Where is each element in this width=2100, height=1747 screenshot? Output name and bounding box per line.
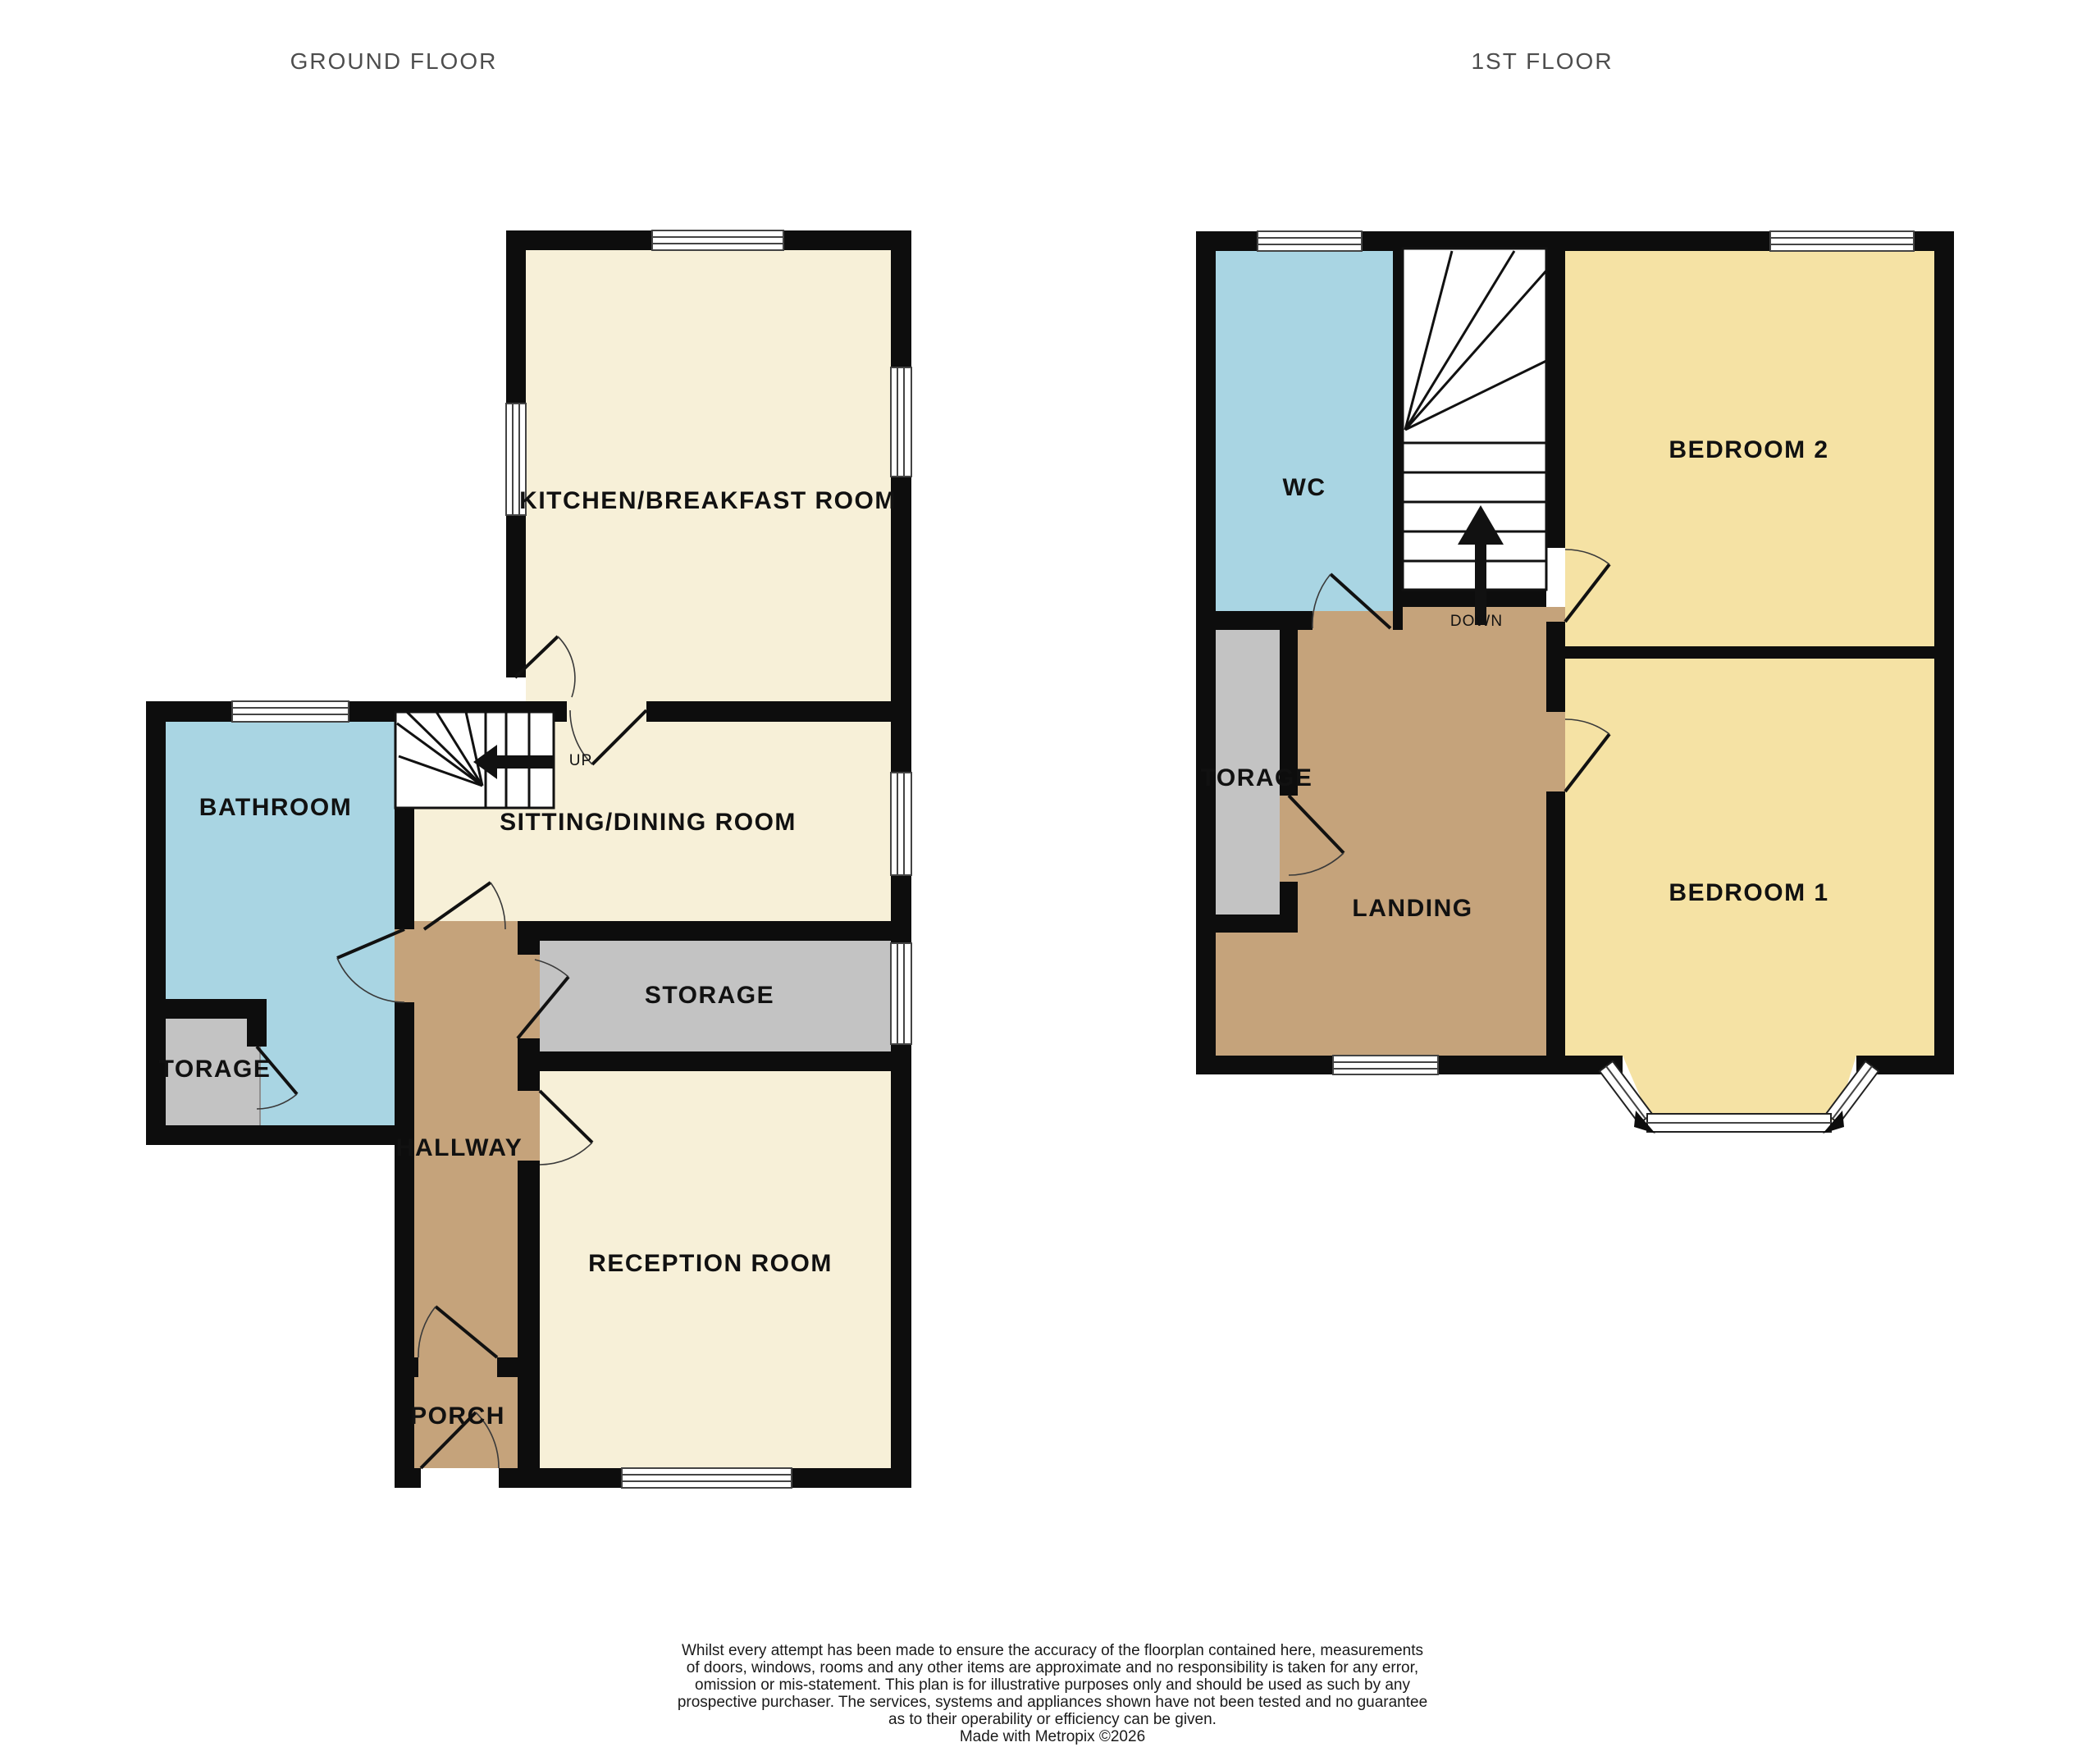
floorplan-page: GROUND FLOOR 1ST FLOOR (0, 0, 2100, 1747)
label-bathroom: BATHROOM (199, 794, 352, 821)
wall (166, 999, 267, 1019)
label-bedroom1: BEDROOM 1 (1669, 879, 1828, 906)
label-storage-ground: STORAGE (645, 982, 774, 1009)
wall (1546, 646, 1934, 659)
ground-floor-plan: KITCHEN/BREAKFAST ROOM SITTING/DINING RO… (146, 230, 911, 1488)
window-bathroom-top (232, 701, 349, 722)
window-pane (891, 943, 911, 1044)
window-wc-top (1258, 231, 1362, 251)
wall (395, 1468, 421, 1488)
label-storage-small-ground: TORAGE (159, 1056, 272, 1083)
window-pane (891, 367, 911, 477)
wall (1546, 791, 1565, 1056)
label-porch: PORCH (410, 1403, 505, 1430)
wall (1546, 659, 1565, 712)
window-pane (652, 230, 783, 250)
window-pane (1333, 1056, 1438, 1074)
room-bedroom1-bay (1623, 1056, 1856, 1120)
window-pane (1258, 231, 1362, 251)
label-landing: LANDING (1352, 895, 1472, 922)
wall (1393, 249, 1403, 630)
disclaimer-line: omission or mis-statement. This plan is … (525, 1676, 1580, 1694)
disclaimer-line: Made with Metropix ©2026 (525, 1728, 1580, 1745)
label-kitchen: KITCHEN/BREAKFAST ROOM (519, 487, 897, 514)
window-kitchen-top (652, 230, 783, 250)
label-hallway: HALLWAY (396, 1134, 523, 1161)
window-pane (622, 1468, 792, 1488)
window-sitting-right (891, 773, 911, 875)
floorplan-drawing: GROUND FLOOR 1ST FLOOR (0, 0, 2100, 1747)
first-floor-plan: WC BEDROOM 2 BEDROOM 1 LANDING TORAGE DO… (1196, 231, 1954, 1133)
wall (518, 1161, 540, 1468)
disclaimer-line: prospective purchaser. The services, sys… (525, 1694, 1580, 1711)
label-wc: WC (1283, 474, 1326, 501)
label-stairs-down: DOWN (1450, 613, 1503, 630)
label-sitting: SITTING/DINING ROOM (500, 809, 797, 836)
disclaimer-line: as to their operability or efficiency ca… (525, 1711, 1580, 1728)
wall (1196, 231, 1216, 1074)
wall (518, 1038, 540, 1091)
wall (1546, 622, 1565, 646)
label-stairs-up: UP (569, 752, 592, 769)
wall (1546, 249, 1565, 548)
wall (518, 921, 540, 955)
disclaimer: Whilst every attempt has been made to en… (525, 1642, 1580, 1745)
wall (1934, 231, 1954, 1074)
wall (1216, 915, 1298, 933)
window-bedroom2-top (1770, 231, 1914, 251)
disclaimer-line: Whilst every attempt has been made to en… (525, 1642, 1580, 1659)
disclaimer-line: of doors, windows, rooms and any other i… (525, 1659, 1580, 1676)
window-pane (232, 701, 349, 722)
label-storage-first: TORAGE (1201, 764, 1313, 791)
wall (1280, 882, 1298, 915)
label-bedroom2: BEDROOM 2 (1669, 436, 1828, 463)
window-kitchen-right (891, 367, 911, 477)
wall (1216, 611, 1312, 630)
wall (247, 1019, 267, 1047)
room-wc (1216, 249, 1393, 611)
first-staircase (1403, 249, 1546, 625)
window-pane (891, 773, 911, 875)
stair-arrow-shaft (497, 755, 554, 769)
room-kitchen (526, 250, 891, 701)
window-reception-bottom (622, 1468, 792, 1488)
wall (518, 921, 891, 941)
ground-floor-title: GROUND FLOOR (290, 48, 498, 74)
wall (395, 1357, 418, 1377)
ground-staircase (395, 712, 554, 808)
first-floor-title: 1ST FLOOR (1471, 48, 1613, 74)
wall (146, 1125, 414, 1145)
window-storage-right (891, 943, 911, 1044)
room-bedroom1 (1565, 659, 1934, 1056)
label-reception: RECEPTION ROOM (588, 1250, 833, 1277)
window-pane (1770, 231, 1914, 251)
window-landing-bottom (1333, 1056, 1438, 1074)
wall (540, 1051, 891, 1071)
wall (1403, 590, 1546, 607)
wall (646, 701, 911, 722)
wall (497, 1357, 518, 1377)
